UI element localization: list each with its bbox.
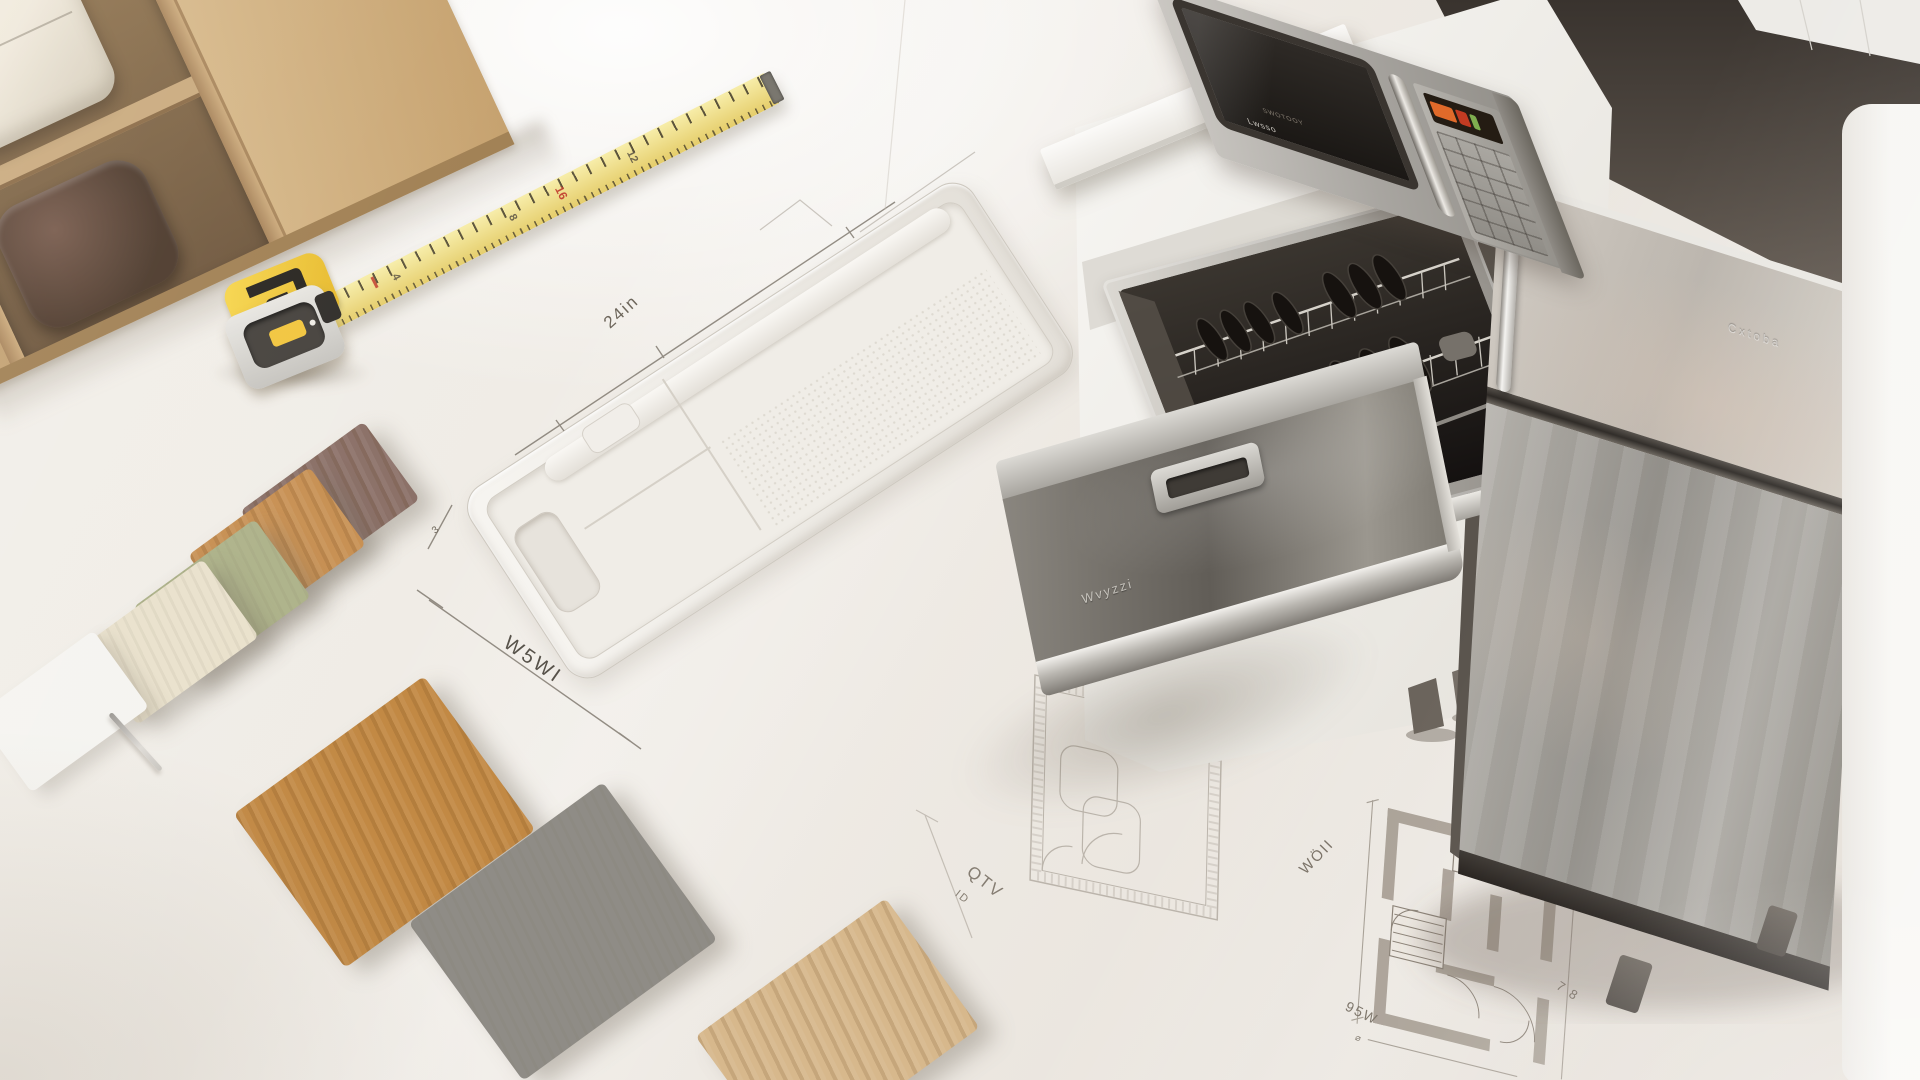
kitchen-planning-scene: 24in 3 W5WI QTV ID: [0, 0, 1920, 1080]
corner-shading: [0, 0, 1920, 1080]
